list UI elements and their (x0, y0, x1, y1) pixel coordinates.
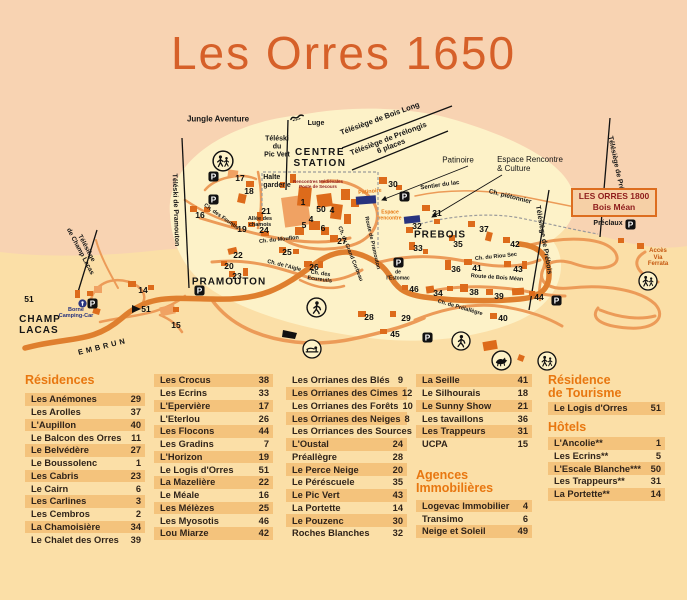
map-location-number: 32 (412, 221, 421, 231)
directory-row-label: Le Boussolenc (31, 458, 97, 468)
directory-row-number: 30 (393, 516, 403, 526)
box-1800-line2: Bois Méan (573, 202, 655, 213)
directory-row-number: 37 (131, 407, 141, 417)
directory-row-number: 6 (523, 514, 528, 524)
directory-row-number: 2 (136, 509, 141, 519)
directory-row: Les Arolles37 (25, 406, 145, 419)
directory-row: Les Cabris23 (25, 470, 145, 483)
directory-row: Transimo6 (416, 512, 532, 525)
map-location-number: 17 (235, 173, 244, 183)
directory-row-number: 9 (398, 375, 403, 385)
map-location-number: 1 (301, 197, 306, 207)
map-location-number: 45 (390, 329, 399, 339)
map-location-number: 29 (401, 313, 410, 323)
directory-row-number: 44 (259, 426, 269, 436)
map-location-number: 33 (413, 243, 422, 253)
map-location-number: 6 (321, 223, 326, 233)
directory-row: Logevac Immobilier4 (416, 500, 532, 513)
map-label: Rencontres Médiévales Poste de Secours (293, 179, 343, 189)
map-location-number: 46 (409, 284, 418, 294)
directory-row-label: Transimo (422, 514, 463, 524)
directory-row: Le Logis d'Orres51 (154, 463, 273, 476)
directory-row-number: 43 (393, 490, 403, 500)
directory-row-label: Le Perce Neige (292, 465, 359, 475)
directory-row-label: Les Orrianes des Cimes (292, 388, 398, 398)
directory-row: La Seille41 (416, 374, 532, 387)
directory-row: La Chamoisière34 (25, 521, 145, 534)
directory-row: Roches Blanches32 (286, 527, 407, 540)
directory-row-number: 26 (259, 414, 269, 424)
directory-row-number: 23 (131, 471, 141, 481)
directory-row: La Portette14 (286, 502, 407, 515)
parking-icon (551, 295, 562, 306)
directory-row: Les Carlines3 (25, 495, 145, 508)
directory-row: Les Ecrins33 (154, 387, 273, 400)
directory-row: Les Orrianes des Neiges8 (286, 412, 407, 425)
directory-row-label: La Portette (292, 503, 341, 513)
directory-row-label: L'Eterlou (160, 414, 200, 424)
directory-row: Préallègre28 (286, 451, 407, 464)
directory-row: Les Ecrins**5 (548, 450, 665, 463)
map-location-number: 43 (513, 264, 522, 274)
parking-icon (422, 332, 433, 343)
directory-row-number: 5 (656, 451, 661, 461)
directory-row: Le Sunny Show21 (416, 400, 532, 413)
sled-icon (302, 339, 322, 359)
directory-section-title: Agences Immobilières (416, 469, 532, 495)
directory-row: Le Boussolenc1 (25, 457, 145, 470)
directory-column: Les Crocus38Les Ecrins33L'Epervière17L'E… (154, 374, 273, 540)
les-orres-1800-box: LES ORRES 1800 Bois Méan (571, 188, 657, 217)
directory-row-label: Le Sunny Show (422, 401, 491, 411)
directory-row: Le Belvédère27 (25, 444, 145, 457)
directory-row: Les Orrianes des Forêts10 (286, 400, 407, 413)
directory-row-number: 28 (393, 452, 403, 462)
directory-row-label: La Chamoisière (31, 522, 100, 532)
directory-row-number: 22 (259, 477, 269, 487)
hikers-icon (537, 351, 557, 371)
directory-row-label: Le Méale (160, 490, 199, 500)
directory-row-label: Les Carlines (31, 496, 86, 506)
directory-row-label: L'Horizon (160, 452, 203, 462)
directory-row-label: L'Oustal (292, 439, 329, 449)
map-label: Espace rencontre (378, 210, 401, 221)
directory-section-title: Résidences (25, 374, 145, 387)
directory-row-label: L'Escale Blanche*** (554, 464, 641, 474)
map-location-number: 36 (451, 264, 460, 274)
parking-icon (393, 257, 404, 268)
map-location-number: 14 (138, 285, 147, 295)
map-location-number: 26 (309, 262, 318, 272)
directory-row-number: 35 (393, 477, 403, 487)
map-label: CHAMP LACAS (19, 314, 61, 336)
directory-row-number: 8 (405, 414, 410, 424)
directory-row-number: 42 (259, 528, 269, 538)
directory-row: Les Mélèzes25 (154, 502, 273, 515)
directory-row-number: 3 (136, 496, 141, 506)
directory-row-label: Préallègre (292, 452, 337, 462)
directory-row-label: Le Pouzenc (292, 516, 344, 526)
directory-row: Les Orriances des Sources13 (286, 425, 407, 438)
directory-row: Le Pouzenc30 (286, 514, 407, 527)
walker-icon (306, 297, 327, 318)
map-location-number: 38 (469, 287, 478, 297)
directory-row: Le Silhourais18 (416, 387, 532, 400)
map-location-number: 23 (232, 271, 241, 281)
directory-row-number: 40 (131, 420, 141, 430)
directory-row: L'Epervière17 (154, 400, 273, 413)
directory-row-number: 38 (259, 375, 269, 385)
map-location-number: 28 (364, 312, 373, 322)
directory-row-label: Le Cairn (31, 484, 68, 494)
directory-row-number: 46 (259, 516, 269, 526)
walker-icon (451, 331, 471, 351)
parking-icon (208, 194, 219, 205)
directory-row-label: Les Flocons (160, 426, 214, 436)
directory-column: Résidence de TourismeLe Logis d'Orres51H… (548, 374, 665, 501)
map-location-number: 44 (534, 292, 543, 302)
directory-row-label: Les Ecrins (160, 388, 207, 398)
directory-row: Le Balcon des Orres11 (25, 431, 145, 444)
directory-row-number: 6 (136, 484, 141, 494)
directory-row-number: 34 (131, 522, 141, 532)
map-location-number: 51 (24, 294, 33, 304)
directory-row-label: Le Balcon des Orres (31, 433, 121, 443)
map-label: Luge (308, 120, 325, 128)
directory-row: L'Oustal24 (286, 438, 407, 451)
directory-row: Les Orrianes des Blés9 (286, 374, 407, 387)
directory-row: La Portette**14 (548, 488, 665, 501)
directory-row: Les Gradins7 (154, 438, 273, 451)
parking-icon (208, 171, 219, 182)
map-location-number: 37 (479, 224, 488, 234)
directory-row-number: 31 (518, 426, 528, 436)
directory-row-number: 32 (393, 528, 403, 538)
map-location-number: 4 (330, 205, 335, 215)
directory-row-label: La Portette** (554, 489, 610, 499)
directory-row-label: L'Epervière (160, 401, 210, 411)
directory-section-title: Hôtels (548, 421, 665, 434)
map-label: Accès Via Ferrata (648, 248, 668, 268)
directory-row-number: 15 (518, 439, 528, 449)
directory-row-label: Le Belvédère (31, 445, 89, 455)
directory-row-number: 21 (518, 401, 528, 411)
directory-row-label: Les Trappeurs** (554, 476, 625, 486)
directory-row: L'Eterlou26 (154, 412, 273, 425)
directory-row: Le Méale16 (154, 489, 273, 502)
map-location-number: 20 (224, 261, 233, 271)
directory-row-number: 41 (518, 375, 528, 385)
directory-row-number: 11 (131, 433, 141, 443)
directory-row-label: Neige et Soleil (422, 526, 486, 536)
map-location-number: 31 (432, 208, 441, 218)
map-label: Borne Camping-Car (59, 307, 94, 319)
directory-row-number: 29 (131, 394, 141, 404)
map-location-number: 27 (337, 236, 346, 246)
box-1800-line1: LES ORRES 1800 (573, 191, 655, 202)
luge-icon (290, 110, 305, 125)
directory-row-number: 51 (259, 465, 269, 475)
directory-row: Le Perce Neige20 (286, 463, 407, 476)
directory-row: Les Cembros2 (25, 508, 145, 521)
directory-row: Lou Miarze42 (154, 527, 273, 540)
map-location-number: 34 (433, 288, 442, 298)
parking-icon (87, 298, 98, 309)
directory-row-label: Les Trappeurs (422, 426, 486, 436)
directory-row-number: 20 (393, 465, 403, 475)
directory-row-number: 27 (131, 445, 141, 455)
directory-row: Les Anémones29 (25, 393, 145, 406)
directory-row-label: Le Logis d'Orres (554, 403, 628, 413)
directory-column: La Seille41Le Silhourais18Le Sunny Show2… (416, 374, 532, 538)
map-location-number: 51 (141, 304, 150, 314)
directory-row-label: Les Gradins (160, 439, 214, 449)
directory-row-number: 31 (651, 476, 661, 486)
map-location-number: 21 (261, 206, 270, 216)
directory-row: La Mazelière22 (154, 476, 273, 489)
map-location-number: 39 (494, 291, 503, 301)
directory-row: UCPA15 (416, 438, 532, 451)
directory-row-number: 1 (656, 438, 661, 448)
directory-row: Les tavaillons36 (416, 412, 532, 425)
directory-row-label: Les Arolles (31, 407, 81, 417)
map-label: Espace Rencontre & Culture (497, 156, 563, 174)
map-location-number: 25 (282, 247, 291, 257)
directory-row: Les Flocons44 (154, 425, 273, 438)
map-location-number: 22 (233, 250, 242, 260)
directory-row: Le Cairn6 (25, 482, 145, 495)
directory-row-number: 19 (259, 452, 269, 462)
directory-row-label: Les Orriances des Sources (292, 426, 412, 436)
directory-row-number: 33 (259, 388, 269, 398)
directory-row-number: 14 (651, 489, 661, 499)
map-label: CENTRE STATION (294, 147, 347, 169)
directory-row: Le Chalet des Orres39 (25, 533, 145, 546)
directory-row-label: Les Cabris (31, 471, 79, 481)
directory-row-label: Le Silhourais (422, 388, 480, 398)
map-label: de l'Estomac (386, 270, 409, 281)
map-location-number: 50 (316, 204, 325, 214)
directory-row-label: La Mazelière (160, 477, 215, 487)
directory-section-title: Résidence de Tourisme (548, 374, 665, 400)
directory-row: Les Trappeurs31 (416, 425, 532, 438)
directory-column: Les Orrianes des Blés9Les Orrianes des C… (286, 374, 407, 540)
directory-row-number: 12 (402, 388, 412, 398)
directory-row-number: 14 (393, 503, 403, 513)
directory-row-label: Les Orrianes des Neiges (292, 414, 401, 424)
directory-row-number: 1 (136, 458, 141, 468)
directory-row-label: Les tavaillons (422, 414, 484, 424)
parking-icon (399, 191, 410, 202)
map-location-number: 4 (309, 214, 314, 224)
directory-row-label: Les Orrianes des Forêts (292, 401, 398, 411)
directory-row-label: Les Mélèzes (160, 503, 214, 513)
directory-row: Les Crocus38 (154, 374, 273, 387)
directory-row-number: 49 (518, 526, 528, 536)
map-location-number: 18 (244, 186, 253, 196)
directory-row-number: 39 (131, 535, 141, 545)
directory-row: Le Péréscuele35 (286, 476, 407, 489)
directory-row: Les Trappeurs**31 (548, 475, 665, 488)
directory-row-number: 10 (402, 401, 412, 411)
directory-row-number: 24 (393, 439, 403, 449)
map-location-number: 16 (195, 210, 204, 220)
directory-row-label: Les Crocus (160, 375, 211, 385)
map-title: Les Orres 1650 (0, 26, 687, 80)
directory-row-label: Les Ecrins** (554, 451, 608, 461)
directory-row: Le Pic Vert43 (286, 489, 407, 502)
directory-row: L'Escale Blanche***50 (548, 462, 665, 475)
hikers-icon (638, 271, 658, 291)
directory-row-label: Les Orrianes des Blés (292, 375, 390, 385)
directory-row-label: Le Péréscuele (292, 477, 355, 487)
map-label: Patinoire (442, 157, 474, 166)
map-location-number: 42 (510, 239, 519, 249)
hikers-icon (212, 150, 234, 172)
directory-row-label: UCPA (422, 439, 448, 449)
map-location-number: 5 (302, 220, 307, 230)
parking-icon (194, 285, 205, 296)
directory-column: RésidencesLes Anémones29Les Arolles37L'A… (25, 374, 145, 546)
map-location-number: 15 (171, 320, 180, 330)
directory-row-label: Roches Blanches (292, 528, 370, 538)
map-location-number: 35 (453, 239, 462, 249)
directory-row-label: L'Ancolie** (554, 438, 603, 448)
directory-row-number: 51 (651, 403, 661, 413)
directory-row-number: 17 (259, 401, 269, 411)
map-poster: P (0, 0, 687, 600)
directory-row: L'Ancolie**1 (548, 437, 665, 450)
directory-row-label: Les Myosotis (160, 516, 219, 526)
directory-row: L'Horizon19 (154, 451, 273, 464)
directory-row: Le Logis d'Orres51 (548, 402, 665, 415)
horse-icon (491, 350, 512, 371)
map-location-number: 41 (472, 263, 481, 273)
directory-row-label: La Seille (422, 375, 460, 385)
map-label: Téléski du Pic Vert (264, 135, 290, 158)
directory-row-label: Logevac Immobilier (422, 501, 509, 511)
map-label: Préclaux (593, 220, 622, 228)
map-label: Halte garderie (263, 174, 291, 190)
directory-row-number: 18 (518, 388, 528, 398)
directory-row: Les Myosotis46 (154, 514, 273, 527)
map-location-number: 30 (388, 179, 397, 189)
map-location-number: 40 (498, 313, 507, 323)
directory-row-label: Le Logis d'Orres (160, 465, 234, 475)
directory-row-number: 4 (523, 501, 528, 511)
map-label: Jungle Aventure (187, 116, 249, 125)
directory-row-number: 50 (651, 464, 661, 474)
map-location-number: 19 (237, 224, 246, 234)
directory-row-label: Lou Miarze (160, 528, 209, 538)
directory-row-label: Le Pic Vert (292, 490, 340, 500)
directory-row-number: 16 (259, 490, 269, 500)
directory-row-label: L'Aupillon (31, 420, 76, 430)
parking-icon (625, 219, 636, 230)
directory-row: L'Aupillon40 (25, 419, 145, 432)
directory-row: Les Orrianes des Cimes12 (286, 387, 407, 400)
directory-row-label: Le Chalet des Orres (31, 535, 119, 545)
directory-row-number: 36 (518, 414, 528, 424)
directory-row-number: 25 (259, 503, 269, 513)
directory-row-label: Les Cembros (31, 509, 90, 519)
map-location-number: 24 (259, 225, 268, 235)
directory-row: Neige et Soleil49 (416, 525, 532, 538)
borne-icon (78, 299, 87, 308)
directory-row-label: Les Anémones (31, 394, 97, 404)
directory-row-number: 7 (264, 439, 269, 449)
